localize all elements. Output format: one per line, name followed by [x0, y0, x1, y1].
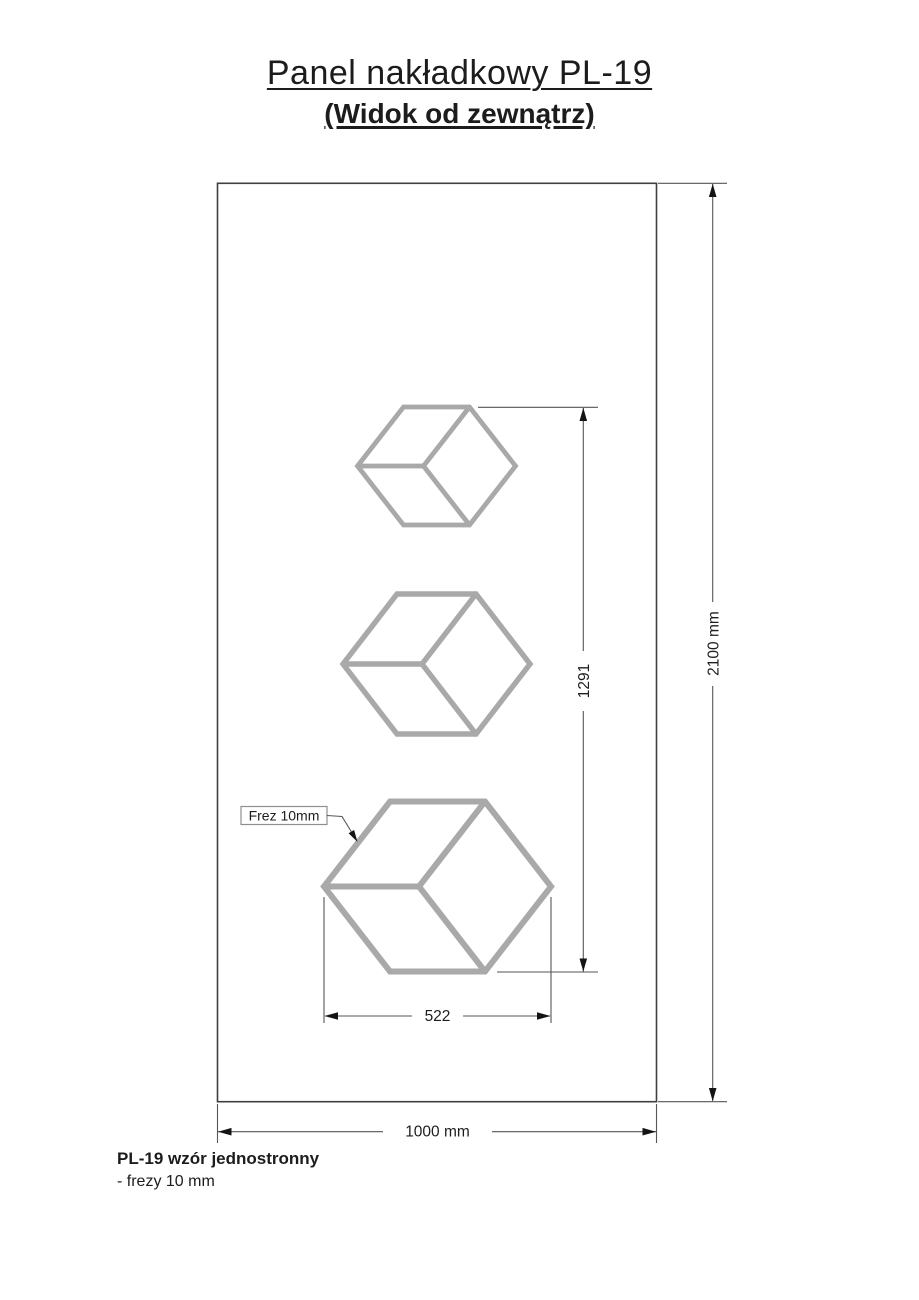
dimension-panel-height: 2100 mm	[658, 183, 727, 1101]
panel-width-label: 1000 mm	[405, 1124, 470, 1141]
panel-height-label: 2100 mm	[706, 611, 723, 676]
mill-note: - frezy 10 mm	[117, 1172, 319, 1191]
arrowhead-down-icon	[709, 1088, 717, 1101]
arrowhead-right-icon	[643, 1128, 657, 1136]
drawing-notes: PL-19 wzór jednostronny - frezy 10 mm	[117, 1149, 319, 1192]
arrowhead-up-icon	[709, 184, 717, 197]
mill-callout-label: Frez 10mm	[249, 808, 320, 824]
technical-drawing: 2100 mm 1291 522 1000 mm Frez 10mm	[0, 0, 919, 1300]
pattern-height-label: 1291	[576, 664, 593, 698]
arrowhead-left-icon	[218, 1128, 232, 1136]
dimension-panel-width: 1000 mm	[218, 1104, 657, 1143]
model-designation: PL-19 wzór jednostronny	[117, 1149, 319, 1169]
cube-width-label: 522	[425, 1008, 451, 1025]
